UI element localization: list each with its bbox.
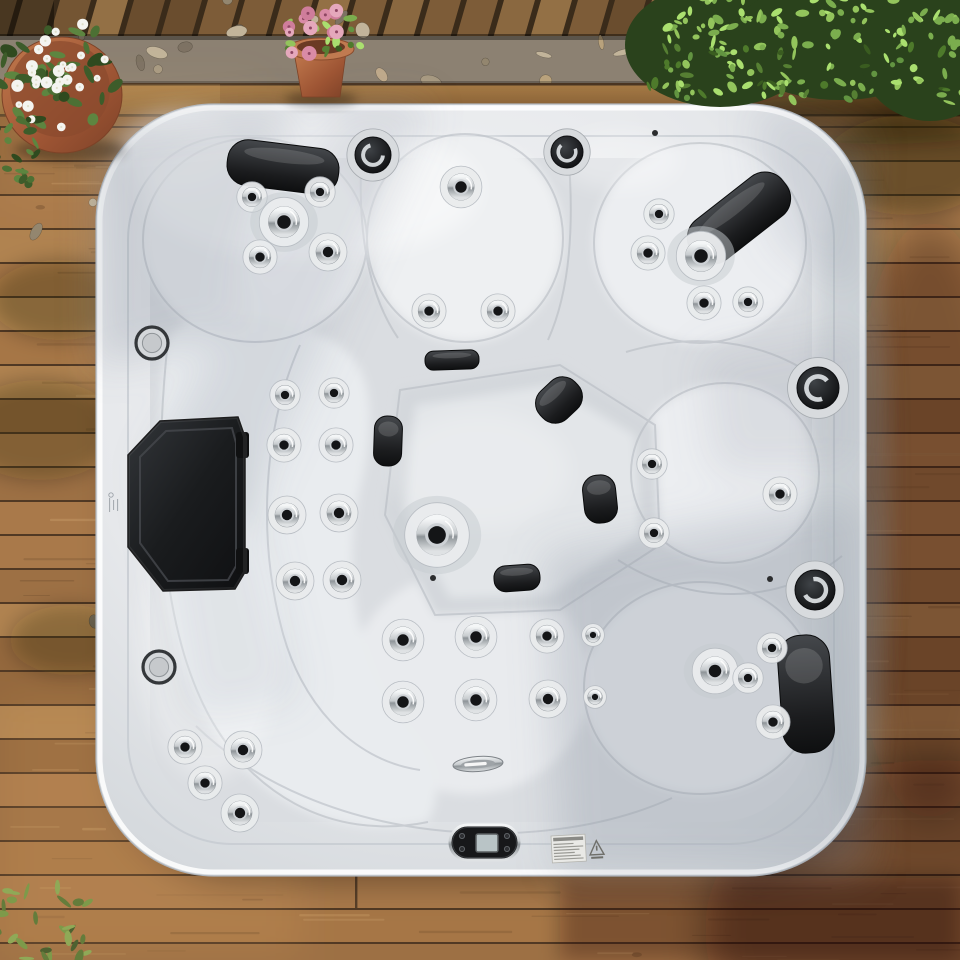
wood-knot	[36, 205, 45, 209]
hydrotherapy-jet	[440, 166, 482, 208]
panel-button	[504, 846, 509, 851]
hedge-leaf	[802, 41, 814, 48]
hydrotherapy-jet	[756, 705, 790, 739]
air-bleed-dot	[767, 576, 773, 582]
hydrotherapy-jet	[319, 378, 349, 408]
hydrotherapy-jet	[224, 731, 262, 769]
equipment-cover-lid	[128, 417, 249, 591]
hydrotherapy-jet	[323, 561, 361, 599]
hydrotherapy-jet	[267, 428, 301, 462]
hydrotherapy-jet	[412, 294, 446, 328]
hydrotherapy-jet	[687, 286, 721, 320]
hydrotherapy-jet-mini	[582, 624, 605, 647]
hydrotherapy-jet	[481, 294, 515, 328]
hydrotherapy-jet	[276, 562, 314, 600]
hydrotherapy-jet	[382, 681, 424, 723]
diverter-knob	[786, 561, 844, 619]
seat-pad	[581, 473, 619, 524]
hydrotherapy-jet	[639, 518, 669, 548]
hedge-leaf	[701, 23, 705, 28]
seat-pad	[493, 563, 541, 592]
hot-tub	[96, 104, 890, 876]
topside-control-panel	[450, 825, 519, 860]
diverter-knob	[788, 358, 849, 419]
diverter-knob	[544, 129, 590, 175]
hydrotherapy-jet	[455, 679, 497, 721]
rim-light-ring	[136, 327, 168, 359]
hydrotherapy-jet	[455, 616, 497, 658]
hydrotherapy-jet	[757, 633, 787, 663]
air-bleed-dot	[430, 575, 436, 581]
hydrotherapy-jet-large	[667, 226, 735, 286]
hydrotherapy-jet	[309, 233, 347, 271]
seat-pad	[373, 416, 403, 467]
hydrotherapy-jet	[320, 494, 358, 532]
hydrotherapy-jet	[637, 449, 667, 479]
hydrotherapy-jet	[270, 380, 300, 410]
hydrotherapy-jet-mini	[584, 686, 607, 709]
seat-pad	[425, 350, 480, 371]
hydrotherapy-jet	[644, 199, 674, 229]
diverter-knob	[347, 129, 399, 181]
hydrotherapy-jet	[733, 663, 763, 693]
hydrotherapy-jet	[763, 477, 797, 511]
cover-hinge-tab	[236, 548, 249, 574]
hydrotherapy-jet	[168, 730, 202, 764]
hydrotherapy-jet	[188, 766, 222, 800]
panel-lcd-screen	[476, 834, 498, 852]
hydrotherapy-jet	[243, 240, 277, 274]
hydrotherapy-jet	[382, 619, 424, 661]
hydrotherapy-jet	[529, 680, 567, 718]
rim-light-ring	[143, 651, 175, 683]
hydrotherapy-jet	[319, 428, 353, 462]
hydrotherapy-jet	[268, 496, 306, 534]
panel-button	[459, 846, 464, 851]
hydrotherapy-jet	[221, 794, 259, 832]
hydrotherapy-jet	[733, 287, 763, 317]
hydrotherapy-jet	[631, 236, 665, 270]
panel-button	[504, 833, 509, 838]
hydrotherapy-jet	[530, 619, 564, 653]
backyard-hot-tub-photo	[0, 0, 960, 960]
hydrotherapy-jet-large	[393, 496, 481, 574]
air-bleed-dot	[652, 130, 658, 136]
panel-button	[459, 833, 464, 838]
